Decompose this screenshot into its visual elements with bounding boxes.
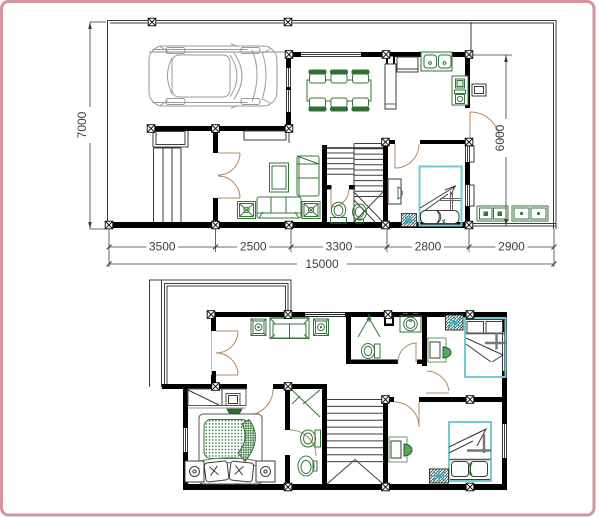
svg-text:7000: 7000 — [75, 111, 89, 138]
svg-text:2900: 2900 — [498, 240, 525, 254]
svg-text:2800: 2800 — [415, 240, 442, 254]
svg-text:3500: 3500 — [149, 240, 176, 254]
svg-text:6000: 6000 — [493, 124, 507, 151]
svg-text:3300: 3300 — [326, 240, 353, 254]
svg-text:15000: 15000 — [305, 257, 339, 271]
svg-text:2500: 2500 — [240, 240, 267, 254]
